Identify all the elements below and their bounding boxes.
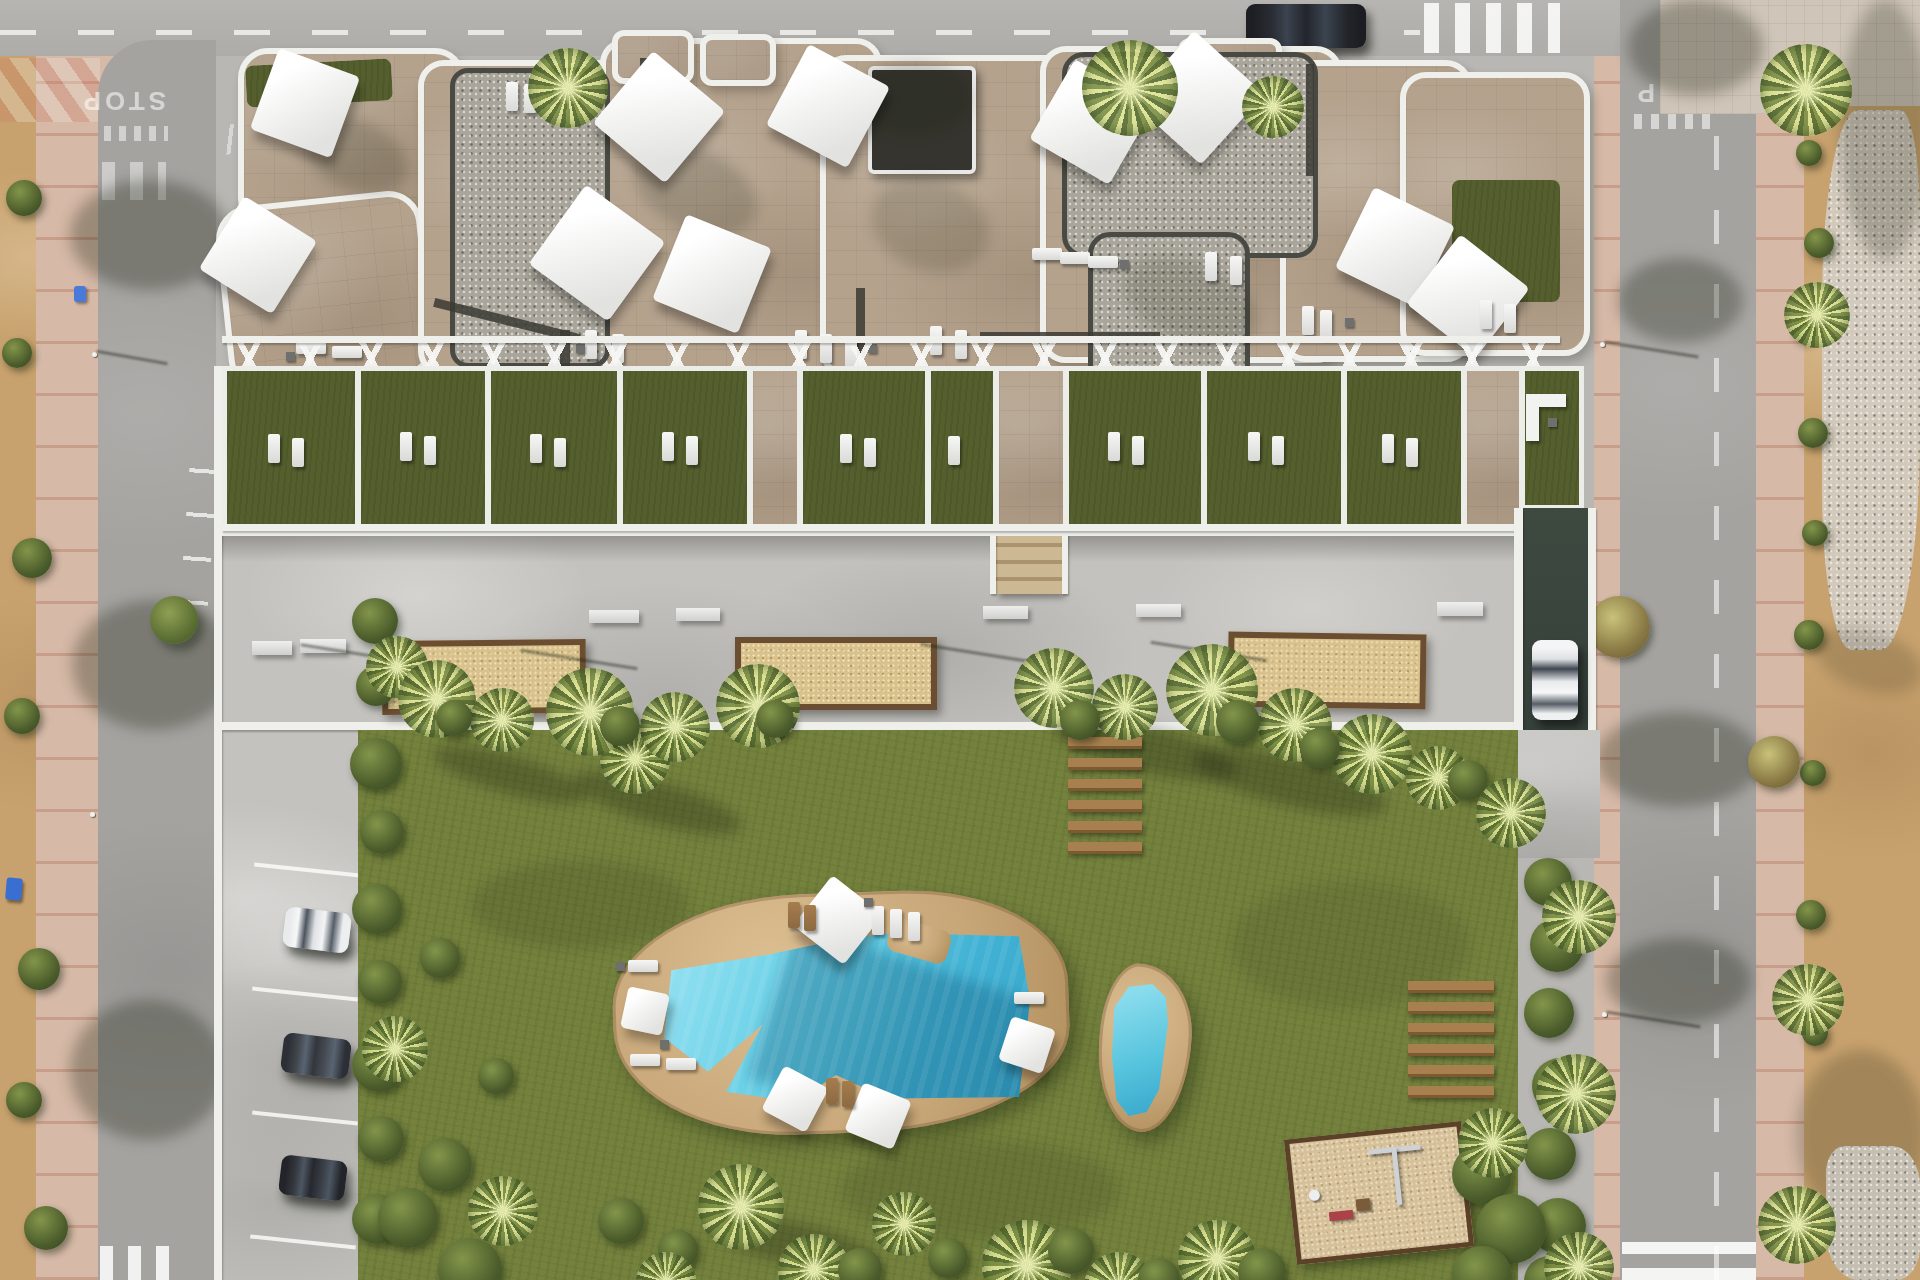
palm-tree (1760, 44, 1852, 136)
palm-tree (1082, 40, 1178, 136)
terrace-lounger (268, 434, 280, 463)
crosswalk-top-right (1424, 3, 1560, 53)
dark-parapet-edge (1306, 64, 1314, 176)
pool-lounger-brown (788, 902, 800, 928)
garden-bush (600, 706, 640, 746)
terrace-lounger (400, 432, 412, 461)
pool-cushion (620, 986, 670, 1036)
pool-lounger (666, 1058, 696, 1070)
terrace-lounger (840, 434, 852, 463)
terrace-lounger (948, 436, 960, 465)
terrace-garden (222, 366, 360, 536)
palm-tree (1092, 674, 1158, 740)
palm-tree (1458, 1108, 1528, 1178)
terrace-sofa (1526, 394, 1566, 407)
hedge-bush (1524, 988, 1574, 1038)
garden-bush (478, 1058, 514, 1094)
hedge-bush (358, 1116, 404, 1162)
terrace-lounger (1132, 436, 1144, 465)
road-tree-shadow (1606, 938, 1751, 1023)
verge-bush (24, 1206, 68, 1250)
play-bench-red (1329, 1210, 1354, 1221)
hedge-bush (350, 738, 402, 790)
ramp-wall (1514, 508, 1523, 730)
terrace-lounger (1108, 432, 1120, 461)
steps-side-wall (990, 526, 996, 594)
pool-lounger (1014, 992, 1044, 1004)
garden-plank-steps (1068, 732, 1142, 854)
plaza-bench (1437, 602, 1483, 616)
verge-bush (2, 338, 32, 368)
garden-bush (1300, 728, 1340, 768)
roadside-weeds (1804, 228, 1834, 258)
roadside-weeds (1796, 900, 1826, 930)
road-tree-shadow (1628, 0, 1763, 95)
roadside-weeds (1798, 418, 1828, 448)
sun-lounger (1088, 256, 1118, 268)
palm-tree (1536, 1054, 1616, 1134)
pergola-rail (222, 336, 1560, 343)
pool-table (660, 1040, 669, 1049)
plaza-bench (589, 610, 639, 623)
palm-tree (1542, 880, 1616, 954)
terrace-sofa (1526, 407, 1539, 441)
plaza-bench (983, 606, 1028, 619)
aerial-scene: STOP STOP (0, 0, 1920, 1280)
plaza-top-shadow (222, 534, 1518, 562)
verge-bush (6, 1082, 42, 1118)
boundary-wall-west (214, 366, 222, 1280)
verge-bush (4, 698, 40, 734)
terrace-lounger (864, 438, 876, 467)
stone-steps (996, 526, 1062, 594)
roof-table (1345, 318, 1354, 327)
hedge-bush (358, 960, 402, 1004)
terrace-walkway (994, 366, 1068, 536)
garden-bush (436, 700, 472, 736)
bare-tree (1748, 736, 1800, 788)
steps-side-wall (1062, 526, 1068, 594)
play-box (1356, 1198, 1371, 1211)
right-stop-line (1634, 114, 1718, 129)
sun-lounger (1302, 306, 1314, 335)
playground (1284, 1121, 1474, 1265)
verge-bush (18, 948, 60, 990)
parked-car-white (282, 906, 352, 954)
street-lamp (90, 812, 95, 817)
parked-car-black (278, 1154, 348, 1202)
terrace-lounger (686, 436, 698, 465)
sun-lounger (506, 82, 518, 111)
hedge-bush (1524, 1128, 1576, 1180)
terrace-lounger (1406, 438, 1418, 467)
terrace-lounger (1248, 432, 1260, 461)
terrace-table (1548, 418, 1557, 427)
verge-bush (6, 180, 42, 216)
palm-tree (1784, 282, 1850, 348)
palm-tree (1332, 714, 1412, 794)
pool-lounger-brown (842, 1081, 854, 1107)
pool-table (616, 962, 625, 971)
palm-tree (1772, 964, 1844, 1036)
palm-tree (468, 1176, 538, 1246)
pool-lounger (630, 1054, 660, 1066)
stop-marking-left: STOP (102, 76, 166, 116)
sun-lounger (1480, 300, 1492, 329)
terrace-lounger (1382, 434, 1394, 463)
verge-bush (12, 538, 52, 578)
garden-bush (1060, 700, 1100, 740)
garden-bush (756, 700, 794, 738)
rubble-pile (1826, 1146, 1920, 1280)
sun-lounger (1230, 256, 1242, 285)
palm-tree (1476, 778, 1546, 848)
left-stop-line (104, 126, 168, 141)
recycle-bin-blue (74, 286, 86, 302)
sun-lounger (1060, 252, 1090, 264)
crosswalk-left-bottom (100, 1246, 180, 1280)
garden-bush (1216, 700, 1260, 744)
pool-lounger (890, 909, 902, 938)
palm-tree (528, 48, 608, 128)
sun-lounger (1504, 304, 1516, 333)
pool-lounger (872, 906, 884, 935)
terrace-lounger (424, 436, 436, 465)
roadside-weeds (1802, 520, 1828, 546)
roof-table (1120, 260, 1129, 269)
terrace-front-wall (222, 524, 1518, 531)
sun-lounger (1032, 248, 1062, 260)
terrace-lounger (554, 438, 566, 467)
roadside-weeds (1794, 620, 1824, 650)
pool-lounger (908, 912, 920, 941)
pool-lounger-brown (804, 905, 816, 931)
bare-tree (1588, 596, 1650, 658)
road-tree-shadow (1596, 712, 1761, 807)
terrace-lounger (662, 432, 674, 461)
garden-bush (1048, 1228, 1094, 1274)
sun-deck-planks (1408, 972, 1494, 1098)
swing-frame (1391, 1147, 1402, 1205)
palm-tree (1242, 76, 1304, 138)
pool-lounger-brown (826, 1078, 838, 1104)
palm-tree (872, 1192, 936, 1256)
roadside-weeds (1800, 760, 1826, 786)
parked-car-gray (280, 1032, 352, 1080)
street-tree (150, 596, 198, 644)
terrace-garden (618, 366, 752, 536)
garden-bush (598, 1198, 644, 1244)
recycle-bin-blue (5, 877, 23, 900)
palm-tree (470, 688, 534, 752)
palm-tree (362, 1016, 428, 1082)
roadside-weeds (1796, 140, 1822, 166)
garden-bush (378, 1188, 438, 1248)
dirt-shadow (1840, 0, 1920, 260)
terrace-garden (1342, 366, 1466, 536)
terrace-garden (926, 366, 998, 536)
car-on-ramp (1532, 640, 1578, 720)
roof-access-box (700, 34, 776, 86)
sun-lounger (1205, 252, 1217, 281)
terrace-garden (356, 366, 490, 536)
palm-tree (1758, 1186, 1836, 1264)
spring-toy (1308, 1189, 1320, 1201)
garden-bush (418, 1138, 472, 1192)
ramp-wall (1588, 508, 1596, 730)
terrace-lounger (530, 434, 542, 463)
terrace-lounger (1272, 436, 1284, 465)
terrace-lounger (292, 438, 304, 467)
palm-tree (698, 1164, 784, 1250)
road-tree-shadow (1618, 258, 1743, 343)
hedge-bush (360, 810, 404, 854)
hedge-bush (352, 884, 402, 934)
pool-table (864, 898, 873, 907)
garden-bush (420, 938, 460, 978)
plaza-bench (676, 608, 720, 621)
crosswalk-bottom-right (1622, 1234, 1758, 1280)
palm-tree (640, 692, 710, 762)
plaza-bench (252, 641, 292, 655)
pool-lounger (628, 960, 658, 972)
tree-shadow-on-road (70, 1000, 225, 1140)
terrace-paved (748, 366, 802, 536)
plaza-bench (1136, 604, 1181, 617)
garden-bush (928, 1238, 968, 1278)
